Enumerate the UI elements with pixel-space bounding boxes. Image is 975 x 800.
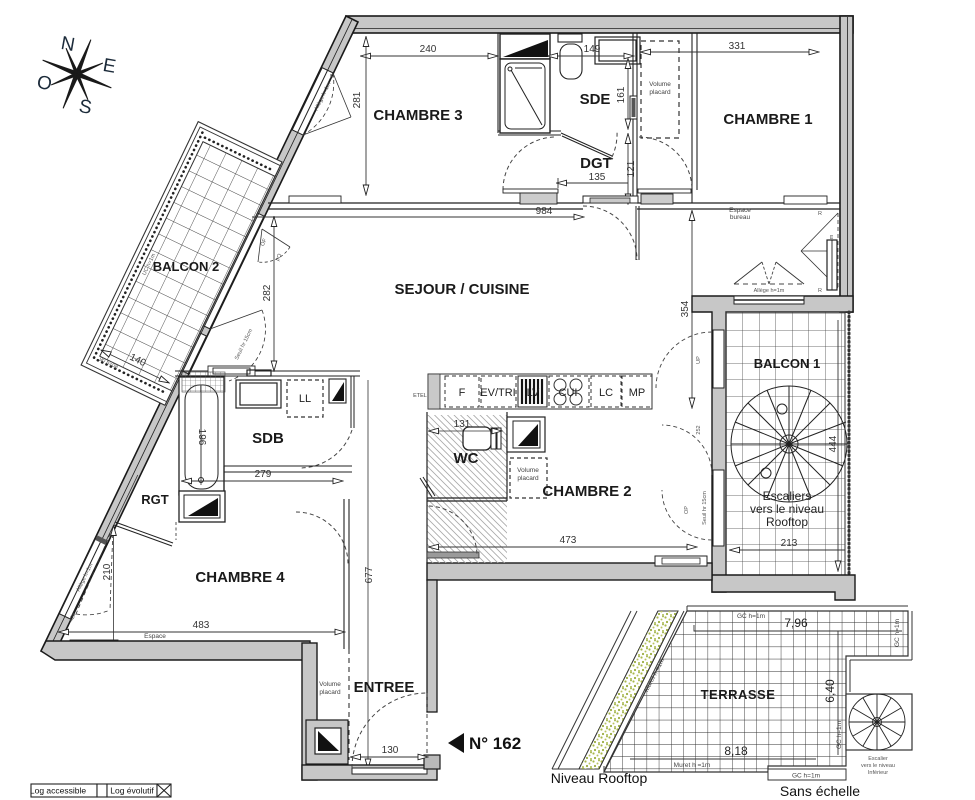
svg-text:R: R bbox=[818, 288, 822, 294]
svg-text:281: 281 bbox=[352, 91, 363, 108]
svg-text:Volume: Volume bbox=[649, 81, 671, 88]
svg-text:placard: placard bbox=[649, 89, 671, 96]
svg-text:984: 984 bbox=[536, 206, 553, 217]
svg-text:240: 240 bbox=[420, 44, 437, 55]
svg-text:149: 149 bbox=[584, 44, 601, 55]
svg-text:GC h=1m: GC h=1m bbox=[737, 613, 765, 620]
svg-text:TERRASSE: TERRASSE bbox=[701, 687, 776, 702]
svg-text:CHAMBRE 3: CHAMBRE 3 bbox=[373, 107, 462, 124]
svg-text:Escaliers: Escaliers bbox=[763, 489, 812, 503]
svg-text:Niveau Rooftop: Niveau Rooftop bbox=[551, 770, 648, 786]
svg-text:135: 135 bbox=[589, 172, 606, 183]
svg-text:bureau: bureau bbox=[730, 214, 751, 221]
svg-text:Seuil hr 15cm: Seuil hr 15cm bbox=[702, 491, 708, 525]
svg-text:130: 130 bbox=[382, 745, 399, 756]
svg-text:Inférieur: Inférieur bbox=[868, 770, 888, 776]
svg-text:279: 279 bbox=[255, 469, 272, 480]
svg-text:213: 213 bbox=[781, 538, 798, 549]
svg-text:SEJOUR / CUISINE: SEJOUR / CUISINE bbox=[394, 281, 529, 298]
svg-text:Muret h =1m: Muret h =1m bbox=[674, 762, 711, 769]
svg-text:CHAMBRE 4: CHAMBRE 4 bbox=[195, 569, 285, 586]
svg-text:ENTREE: ENTREE bbox=[354, 679, 415, 696]
svg-text:OP: OP bbox=[684, 506, 690, 514]
svg-text:7,96: 7,96 bbox=[784, 616, 808, 630]
svg-text:Rooftop: Rooftop bbox=[766, 515, 808, 529]
svg-text:placard: placard bbox=[517, 475, 539, 482]
svg-text:Log accessible: Log accessible bbox=[30, 786, 87, 796]
svg-text:8,18: 8,18 bbox=[724, 744, 748, 758]
svg-text:LL: LL bbox=[299, 393, 311, 405]
svg-text:N° 162: N° 162 bbox=[469, 734, 521, 753]
svg-text:677: 677 bbox=[364, 566, 375, 583]
svg-text:354: 354 bbox=[680, 300, 691, 317]
svg-text:CUI: CUI bbox=[559, 387, 578, 399]
svg-text:SDE: SDE bbox=[580, 91, 611, 108]
svg-text:ETEL: ETEL bbox=[413, 393, 427, 399]
svg-text:131: 131 bbox=[454, 419, 471, 430]
svg-text:placard: placard bbox=[319, 689, 341, 696]
svg-text:331: 331 bbox=[729, 41, 746, 52]
svg-text:BALCON 1: BALCON 1 bbox=[754, 356, 820, 371]
svg-text:282: 282 bbox=[262, 284, 273, 301]
svg-text:6,40: 6,40 bbox=[823, 679, 837, 703]
svg-text:473: 473 bbox=[560, 535, 577, 546]
svg-text:Espace: Espace bbox=[144, 633, 166, 640]
svg-text:GC h=1m: GC h=1m bbox=[836, 721, 843, 749]
svg-text:Volume: Volume bbox=[319, 681, 341, 688]
svg-text:444: 444 bbox=[828, 435, 839, 452]
svg-text:Log évolutif: Log évolutif bbox=[110, 786, 154, 796]
svg-text:DGT: DGT bbox=[580, 155, 612, 172]
svg-text:WC: WC bbox=[454, 450, 479, 467]
svg-text:GC h=1m: GC h=1m bbox=[792, 773, 820, 780]
svg-text:483: 483 bbox=[193, 620, 210, 631]
svg-text:MP: MP bbox=[629, 387, 646, 399]
svg-text:GC h=1m: GC h=1m bbox=[894, 619, 901, 647]
svg-text:EV/TRI: EV/TRI bbox=[480, 387, 515, 399]
svg-text:vers le niveau: vers le niveau bbox=[861, 763, 895, 769]
svg-text:RGT: RGT bbox=[141, 492, 169, 507]
svg-text:Sans échelle: Sans échelle bbox=[780, 783, 860, 799]
svg-text:R: R bbox=[818, 211, 822, 217]
svg-text:SDB: SDB bbox=[252, 430, 284, 447]
svg-text:Escalier: Escalier bbox=[868, 756, 888, 762]
svg-text:UP: UP bbox=[696, 356, 702, 364]
svg-text:161: 161 bbox=[616, 86, 627, 103]
svg-text:LC: LC bbox=[599, 387, 613, 399]
svg-text:CHAMBRE 2: CHAMBRE 2 bbox=[542, 483, 631, 500]
svg-text:Espace: Espace bbox=[729, 207, 751, 214]
svg-text:R: R bbox=[330, 74, 334, 80]
svg-text:BALCON 2: BALCON 2 bbox=[153, 259, 219, 274]
svg-text:vers le niveau: vers le niveau bbox=[750, 502, 824, 516]
svg-text:Volume: Volume bbox=[517, 467, 539, 474]
svg-text:252: 252 bbox=[696, 425, 702, 434]
svg-text:196: 196 bbox=[196, 429, 207, 446]
svg-text:LV: LV bbox=[527, 387, 540, 399]
svg-text:F: F bbox=[459, 387, 466, 399]
svg-text:CHAMBRE 1: CHAMBRE 1 bbox=[723, 111, 812, 128]
svg-text:121: 121 bbox=[626, 160, 637, 177]
svg-text:Allège h=1m: Allège h=1m bbox=[754, 288, 785, 294]
svg-text:210: 210 bbox=[102, 563, 113, 580]
